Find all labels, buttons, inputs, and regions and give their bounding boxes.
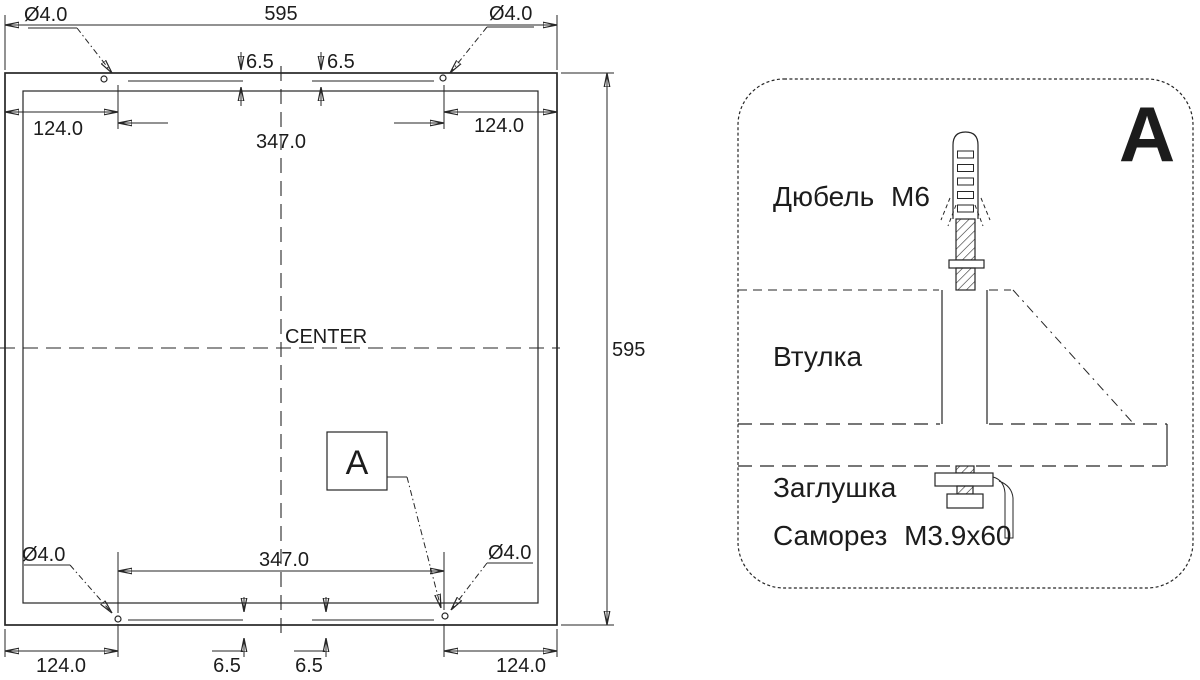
dim-label-edge-offset: 124.0: [33, 118, 83, 140]
detail-marker-label: A: [346, 444, 369, 482]
dim-label-top-width: 595: [264, 3, 297, 25]
hole-diameter-label: Ø4.0: [22, 544, 65, 566]
dim-edge-offset-bottom-left: 124.0: [5, 624, 118, 677]
dim-label-edge-offset: 124.0: [496, 655, 546, 677]
dim-label-edge-offset: 124.0: [474, 115, 524, 137]
dim-label-vertical-offset: 6.5: [327, 51, 355, 73]
dim-label-vertical-offset: 6.5: [295, 655, 323, 677]
detail-view: A: [738, 79, 1193, 588]
screw-washer: [935, 473, 993, 486]
sleeve-leader-line: [1013, 290, 1133, 423]
dim-label-hole-spacing: 347.0: [256, 131, 306, 153]
dim-top-width: 595: [5, 3, 557, 70]
dim-label-vertical-offset: 6.5: [246, 51, 274, 73]
plug-cap: [947, 494, 983, 508]
detail-title: A: [1119, 90, 1175, 178]
dim-edge-offset-bottom-right: 124.0: [444, 624, 557, 677]
dim-vertical-offset-bottom-right: 6.5: [294, 597, 326, 677]
dim-label-right-height: 595: [612, 339, 645, 361]
center-label: CENTER: [285, 326, 367, 348]
hole-diameter-label: Ø4.0: [489, 3, 532, 25]
dowel-wing-left: [941, 198, 950, 220]
dim-vertical-offset-bottom-left: 6.5: [212, 597, 244, 677]
label-sleeve: Втулка: [773, 341, 862, 372]
sleeve-flange: [949, 260, 984, 268]
mounting-hole-top-left: [101, 76, 107, 82]
dowel-graphic: [941, 132, 990, 226]
detail-marker-callout: A: [327, 432, 441, 608]
mounting-hole-bottom-left: [115, 616, 121, 622]
panel-section-graphic: [738, 424, 1167, 466]
dim-vertical-offset-top-right: 6.5: [321, 51, 355, 106]
leader-hole-diameter-top-left: Ø4.0: [24, 4, 112, 73]
dim-edge-offset-top-right: 124.0: [444, 85, 557, 137]
dim-label-edge-offset: 124.0: [36, 655, 86, 677]
dim-hole-spacing-top: 347.0: [118, 123, 444, 153]
dim-edge-offset-top-left: 124.0: [5, 85, 118, 140]
screw-shaft-upper: [949, 219, 984, 290]
dim-vertical-offset-top-left: 6.5: [241, 51, 274, 106]
sleeve-graphic: [942, 290, 987, 424]
mounting-hole-top-right: [440, 75, 446, 81]
mounting-hole-bottom-right: [442, 613, 448, 619]
dowel-wing-right: [981, 198, 990, 220]
leader-hole-diameter-top-right: Ø4.0: [450, 3, 534, 73]
technical-drawing: CENTER 595 595 124.: [0, 0, 1200, 680]
plan-view: CENTER 595 595 124.: [0, 3, 645, 677]
leader-hole-diameter-bottom-right: Ø4.0: [451, 542, 533, 610]
drawing-canvas: CENTER 595 595 124.: [0, 0, 1200, 680]
dim-right-height: 595: [561, 73, 645, 625]
label-plug: Заглушка: [773, 472, 897, 503]
dim-label-hole-spacing: 347.0: [259, 549, 309, 571]
label-screw: Саморез М3.9х60: [773, 520, 1011, 551]
hole-diameter-label: Ø4.0: [24, 4, 67, 26]
hole-diameter-label: Ø4.0: [488, 542, 531, 564]
dim-label-vertical-offset: 6.5: [213, 655, 241, 677]
label-dowel: Дюбель М6: [773, 181, 930, 212]
